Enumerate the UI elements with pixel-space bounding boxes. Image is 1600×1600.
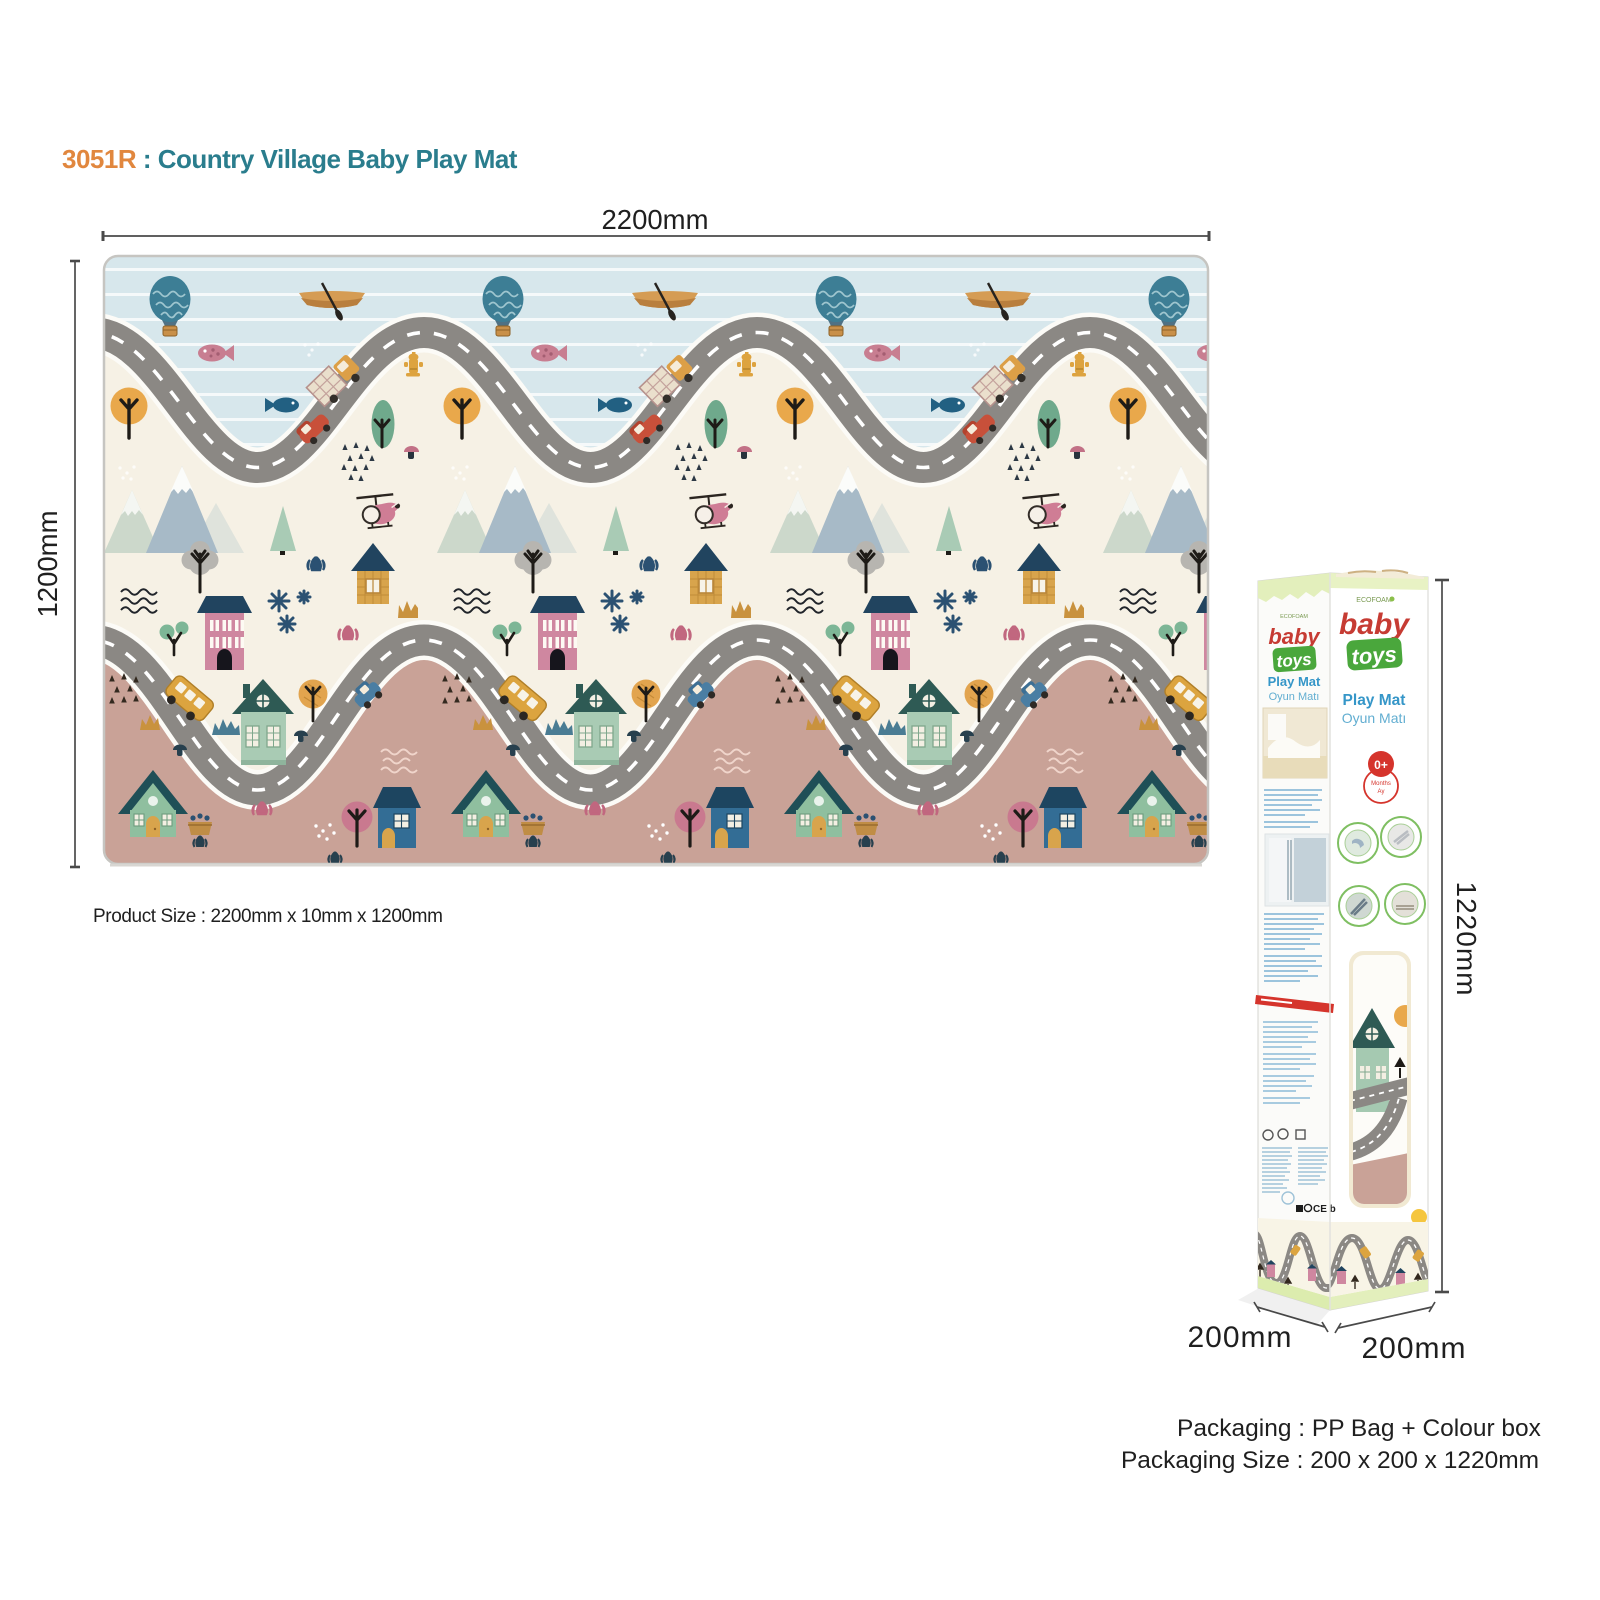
svg-text:1220mm: 1220mm	[1451, 882, 1482, 997]
svg-text:toys: toys	[1351, 641, 1398, 669]
svg-text:CE b: CE b	[1313, 1204, 1336, 1215]
svg-text:baby: baby	[1268, 624, 1321, 649]
svg-text:2200mm: 2200mm	[602, 204, 709, 235]
svg-text:0+: 0+	[1374, 758, 1388, 772]
svg-text:1200mm: 1200mm	[32, 511, 63, 618]
svg-text:ECOFOAM: ECOFOAM	[1356, 597, 1392, 604]
svg-text:Oyun Matı: Oyun Matı	[1342, 710, 1407, 726]
svg-text:Packaging : PP Bag + Colour bo: Packaging : PP Bag + Colour box	[1177, 1415, 1541, 1442]
svg-text:Play Mat: Play Mat	[1268, 674, 1321, 689]
svg-text:3051R : Country Village Baby P: 3051R : Country Village Baby Play Mat	[62, 144, 518, 174]
svg-text:ECOFOAM: ECOFOAM	[1280, 614, 1308, 620]
svg-text:baby: baby	[1339, 608, 1410, 641]
svg-text:Months: Months	[1371, 781, 1391, 787]
svg-text:Ay: Ay	[1378, 789, 1385, 795]
svg-text:Packaging Size : 200 x 200 x 1: Packaging Size : 200 x 200 x 1220mm	[1121, 1447, 1539, 1474]
svg-text:Product Size : 2200mm x 10mm x: Product Size : 2200mm x 10mm x 1200mm	[93, 906, 443, 927]
svg-text:200mm: 200mm	[1187, 1321, 1292, 1354]
svg-text:toys: toys	[1276, 650, 1312, 671]
svg-text:200mm: 200mm	[1361, 1332, 1466, 1365]
svg-text:Oyun Matı: Oyun Matı	[1269, 691, 1320, 703]
svg-text:Play Mat: Play Mat	[1343, 692, 1406, 709]
